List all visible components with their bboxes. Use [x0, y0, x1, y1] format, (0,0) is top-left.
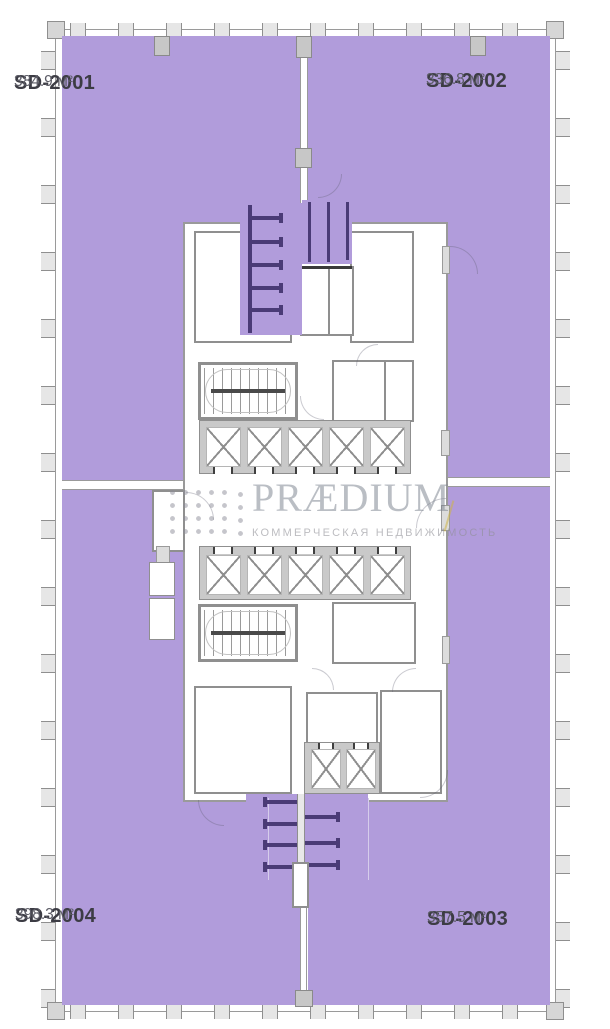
elevator-shaft — [206, 555, 241, 595]
elevator-door — [377, 467, 397, 474]
elevator-door — [295, 467, 315, 474]
core-room — [194, 686, 292, 794]
pilaster — [441, 430, 450, 456]
vestibule-partition — [327, 202, 330, 262]
elevator-shaft — [311, 749, 341, 789]
wall — [368, 798, 369, 880]
facade-mullions-bottom — [55, 1005, 556, 1019]
elevator-door — [254, 467, 274, 474]
floor-plan: PRÆDIUM КОММЕРЧЕСКАЯ НЕДВИЖИМОСТЬ SD-200… — [0, 0, 610, 1029]
column — [295, 148, 312, 168]
core-room — [332, 360, 414, 422]
stall-partition — [305, 863, 339, 867]
elevator-bank-lower — [199, 546, 411, 600]
elevator-shaft — [206, 427, 241, 467]
facade-shaft — [149, 562, 175, 596]
facade-shaft — [149, 598, 175, 640]
demising-wall-left — [62, 480, 183, 490]
wall — [302, 266, 352, 269]
unit-area-value: 398.3 м² — [15, 906, 74, 924]
elevator-door — [353, 743, 369, 749]
unit-area-value: 336.8 м² — [426, 71, 485, 89]
facade-mullions-left — [41, 29, 55, 1012]
unit-area-value: 384.9 м² — [14, 73, 73, 91]
demising-wall-top — [300, 36, 308, 222]
service-elevators — [304, 742, 380, 794]
elevator-shaft — [329, 555, 364, 595]
stall-partition — [305, 841, 339, 845]
vestibule-partition — [308, 202, 311, 262]
column — [296, 36, 312, 58]
elevator-shaft — [370, 427, 405, 467]
stall-partition — [252, 308, 282, 312]
elevator-shaft — [247, 427, 282, 467]
elevator-shaft — [288, 555, 323, 595]
staircase-upper — [198, 362, 298, 420]
wall — [328, 268, 330, 334]
facade-mullions-right — [556, 29, 570, 1012]
column — [295, 990, 313, 1007]
vestibule-partition — [346, 202, 349, 260]
stall-partition — [252, 216, 282, 220]
facade-mullions-top — [55, 23, 556, 37]
elevator-door — [318, 743, 334, 749]
column — [470, 36, 486, 56]
elevator-door — [336, 547, 356, 554]
lobby-entry — [152, 490, 185, 552]
core-room — [350, 231, 414, 343]
elevator-shaft — [247, 555, 282, 595]
stair-rail — [211, 631, 285, 635]
elevator-door — [213, 547, 233, 554]
column — [154, 36, 170, 56]
elevator-shaft — [370, 555, 405, 595]
elevator-shaft — [346, 749, 376, 789]
unit-area-value: 357.5 м² — [427, 909, 486, 927]
elevator-shaft — [329, 427, 364, 467]
elevator-door — [213, 467, 233, 474]
service-shaft — [292, 862, 309, 908]
elevator-door — [377, 547, 397, 554]
stall-partition — [252, 286, 282, 290]
elevator-door — [295, 547, 315, 554]
core-room — [332, 602, 416, 664]
stall-wall — [297, 794, 305, 868]
elevator-shaft — [288, 427, 323, 467]
wc-room — [300, 266, 354, 336]
staircase-lower — [198, 604, 298, 662]
stall-partition — [264, 800, 297, 804]
elevator-door — [254, 547, 274, 554]
stall-partition — [252, 240, 282, 244]
elevator-door — [336, 467, 356, 474]
stall-partition — [264, 843, 297, 847]
stall-partition — [252, 263, 282, 267]
elevator-bank-upper — [199, 420, 411, 474]
wall — [384, 362, 386, 420]
stall-wall — [248, 205, 252, 333]
stair-rail — [211, 389, 285, 393]
demising-wall-right — [446, 477, 550, 487]
pilaster — [442, 636, 450, 664]
stall-partition — [264, 822, 297, 826]
core-room — [306, 692, 378, 744]
stall-partition — [305, 815, 339, 819]
pilaster — [442, 246, 450, 274]
